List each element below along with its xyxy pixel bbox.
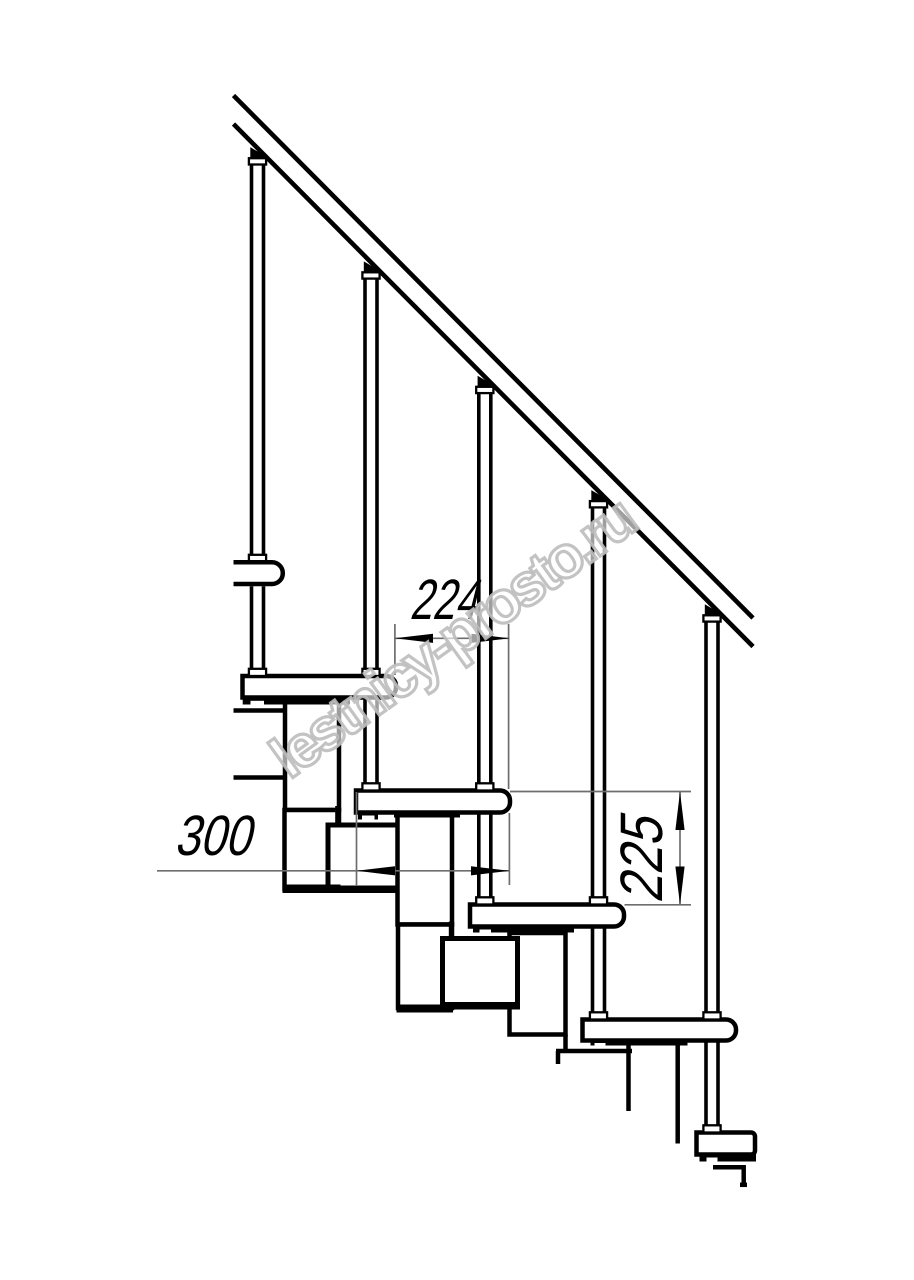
svg-text:300: 300	[171, 804, 263, 868]
svg-text:225: 225	[609, 805, 676, 907]
